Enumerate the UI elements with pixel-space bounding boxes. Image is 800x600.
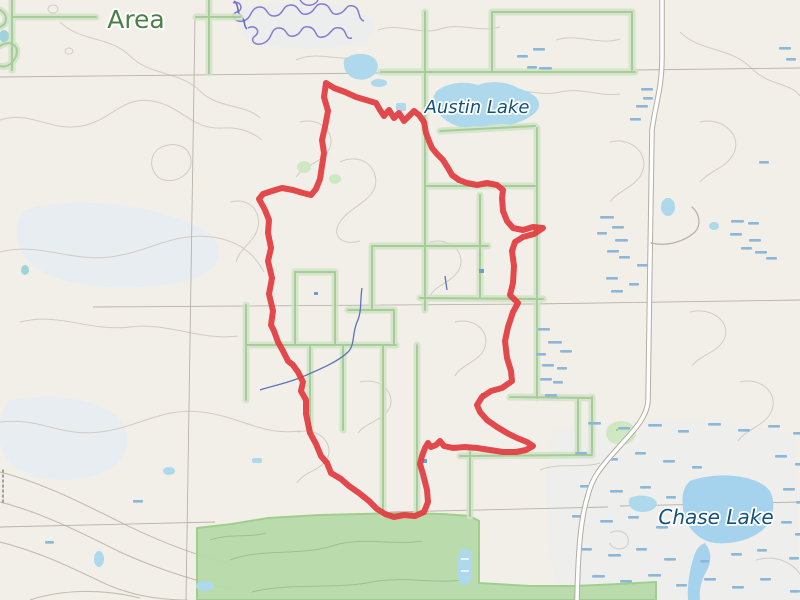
wetland-dash	[539, 67, 552, 70]
wetland-dash	[755, 251, 767, 254]
wetland-dash	[663, 460, 675, 463]
label-chase-lake: Chase Lake	[658, 505, 773, 529]
wetland-dash	[708, 423, 721, 426]
wetland-dash	[553, 381, 563, 384]
wetland-dash	[783, 488, 795, 491]
forest-pond	[457, 549, 472, 585]
wetland-dash	[517, 55, 528, 58]
wetland-dash	[636, 105, 648, 108]
wetland-dash	[545, 394, 557, 397]
wetland-dash	[600, 216, 614, 219]
wetland-dash	[789, 557, 799, 560]
wetland-dash	[618, 427, 630, 430]
map-canvas[interactable]: Area Austin Lake Chase Lake	[0, 0, 800, 600]
wetland-dash	[676, 584, 687, 587]
wetland-dash	[629, 283, 639, 286]
wetland-dash	[781, 521, 792, 524]
wetland-dash	[795, 463, 800, 466]
wetland-dash	[796, 501, 800, 504]
wetland-dash	[615, 239, 628, 242]
wetland-dash	[592, 575, 605, 578]
wetland-dash	[666, 496, 676, 499]
wetland-dash	[760, 578, 771, 581]
wetland-dash	[619, 256, 630, 259]
wetland-dash	[790, 590, 800, 593]
wetland-dash	[692, 466, 702, 469]
wetland-dash	[540, 378, 552, 381]
wetland-dash	[704, 578, 716, 581]
wetland-dash	[749, 239, 761, 242]
wetland-dash	[759, 161, 769, 164]
wetland-dash	[786, 58, 796, 61]
wetland-dash	[648, 424, 662, 427]
pond-sw-1	[94, 551, 104, 567]
wetland-dash	[640, 486, 651, 489]
wetland-dash	[741, 247, 752, 250]
wetland-dash	[643, 97, 653, 100]
wetland-dash	[732, 586, 744, 589]
wetland-dash	[648, 574, 661, 577]
wetland-dash	[548, 341, 562, 344]
wetland-dash	[560, 350, 572, 353]
wetland-dash	[610, 490, 623, 493]
wetland-dash	[678, 430, 689, 433]
wetland-dash	[766, 257, 777, 260]
wetland-dash	[630, 118, 641, 121]
wetland-dash	[793, 432, 800, 435]
wetland-dash	[597, 232, 607, 235]
pond-east-2	[709, 222, 719, 230]
wetland-dash	[757, 549, 767, 552]
wetland-dash	[636, 548, 647, 551]
wetland-dash	[738, 429, 750, 432]
wetland-dash	[575, 452, 587, 455]
wetland-dash	[536, 353, 546, 356]
wetland-dash	[588, 422, 601, 425]
pond-west-teal	[21, 265, 29, 275]
wetland-dash	[557, 367, 567, 370]
wetland-dash	[641, 88, 653, 91]
wetland-dash	[538, 328, 550, 331]
wetland-dash	[620, 580, 632, 583]
label-austin-lake: Austin Lake	[424, 97, 530, 118]
wetland-dash	[542, 364, 554, 367]
wetland-dash	[700, 560, 709, 563]
wetland-dash	[608, 554, 621, 557]
wetland-dash	[612, 226, 624, 229]
wetland-dash	[45, 541, 54, 544]
wetland-dash	[768, 425, 780, 428]
wetland-dash	[527, 66, 537, 69]
wetland-dash	[607, 250, 619, 253]
wetland-dash	[533, 48, 545, 51]
wetland-dash	[628, 516, 639, 519]
wetland-dash	[730, 233, 742, 236]
wetland-dash	[606, 277, 618, 280]
wetland-dash	[731, 220, 744, 223]
wetland-dash	[775, 455, 787, 458]
wetland-dash	[133, 500, 143, 503]
wetland-dash	[731, 553, 742, 556]
wetland-dash	[635, 452, 646, 455]
pond-sw-2	[196, 581, 214, 591]
wetland-dash	[795, 533, 800, 536]
wetland-dash	[748, 222, 759, 225]
pond-sw-3	[163, 467, 175, 475]
wetland-dash	[779, 47, 791, 50]
pond-east-1	[661, 198, 675, 216]
wetland-dash	[611, 290, 623, 293]
wetland-dash	[664, 558, 676, 561]
label-area: Area	[107, 5, 165, 34]
wetland-dash	[600, 520, 613, 523]
